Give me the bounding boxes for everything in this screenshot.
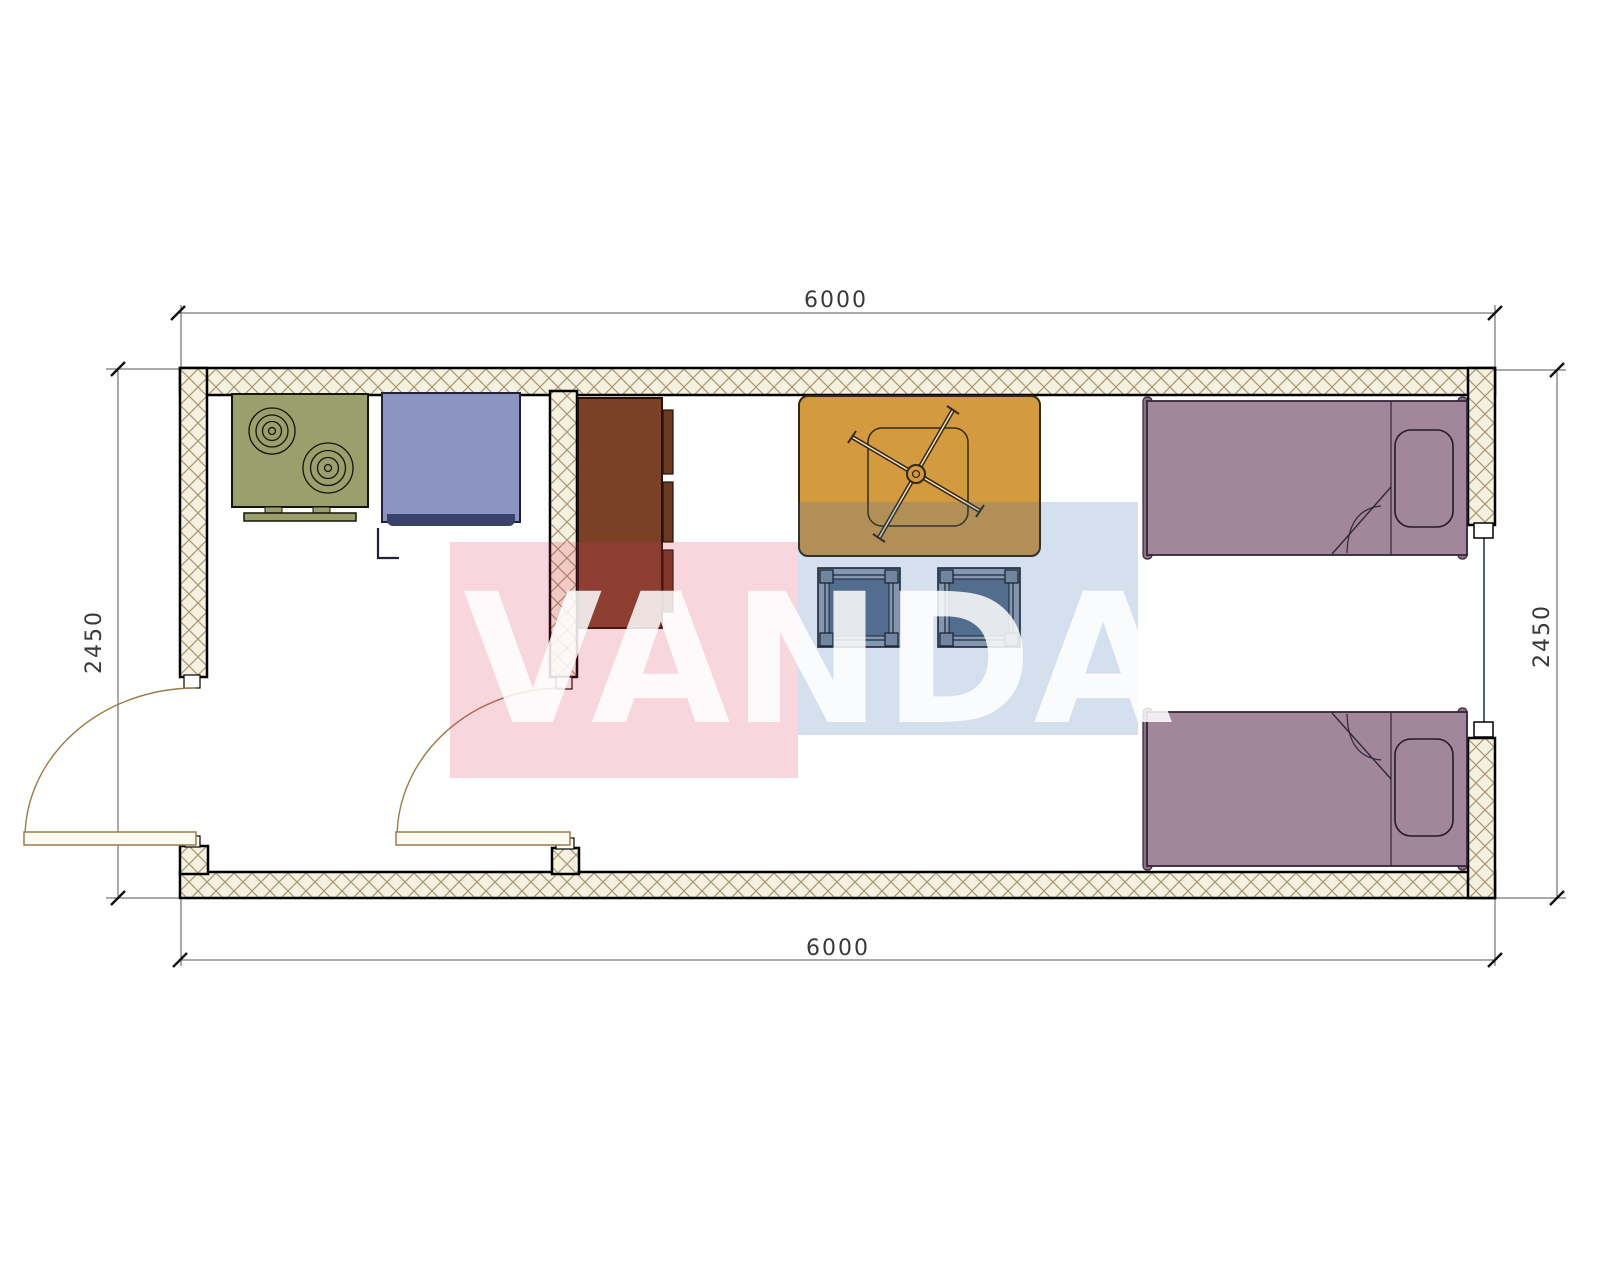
watermark: VANDA xyxy=(450,502,1174,778)
wall-top xyxy=(180,368,1495,395)
bed-top xyxy=(1143,397,1467,559)
washing-machine-body xyxy=(382,393,520,522)
wardrobe-handle-middle xyxy=(663,482,673,542)
interior-door-leaf xyxy=(396,832,570,845)
floor-plan-canvas: 6000 6000 2450 2450 xyxy=(0,0,1600,1280)
stove-body xyxy=(232,394,368,507)
window-frame-bottom xyxy=(1474,722,1493,737)
wall-right-upper xyxy=(1468,368,1495,525)
stove xyxy=(232,394,368,521)
wall-right-lower xyxy=(1468,738,1495,898)
entry-door-leaf xyxy=(24,832,196,845)
washing-machine-front-band xyxy=(387,514,515,526)
fan-hub xyxy=(907,465,925,483)
stove-tab-right xyxy=(313,507,330,513)
wall-stub-door2 xyxy=(552,848,579,874)
floor-plan-drawing: 6000 6000 2450 2450 xyxy=(0,0,1600,1280)
wall-stub-corner xyxy=(180,846,208,874)
dim-text-right: 2450 xyxy=(1530,604,1555,668)
wall-left xyxy=(180,368,207,677)
dim-text-top: 6000 xyxy=(804,288,868,313)
watermark-text: VANDA xyxy=(463,556,1174,765)
bed-bottom xyxy=(1143,708,1467,870)
bed-bottom-pillow xyxy=(1395,739,1453,836)
wall-bottom xyxy=(180,872,1495,898)
stove-tab-left xyxy=(265,507,282,513)
bed-top-pillow xyxy=(1395,430,1453,527)
window-frame-top xyxy=(1474,523,1493,538)
wardrobe-handle-top xyxy=(663,410,673,474)
jamb-left-wall-end xyxy=(184,675,200,688)
dim-text-bottom: 6000 xyxy=(806,936,870,961)
dim-text-left: 2450 xyxy=(82,610,107,674)
stove-handle xyxy=(244,513,356,521)
